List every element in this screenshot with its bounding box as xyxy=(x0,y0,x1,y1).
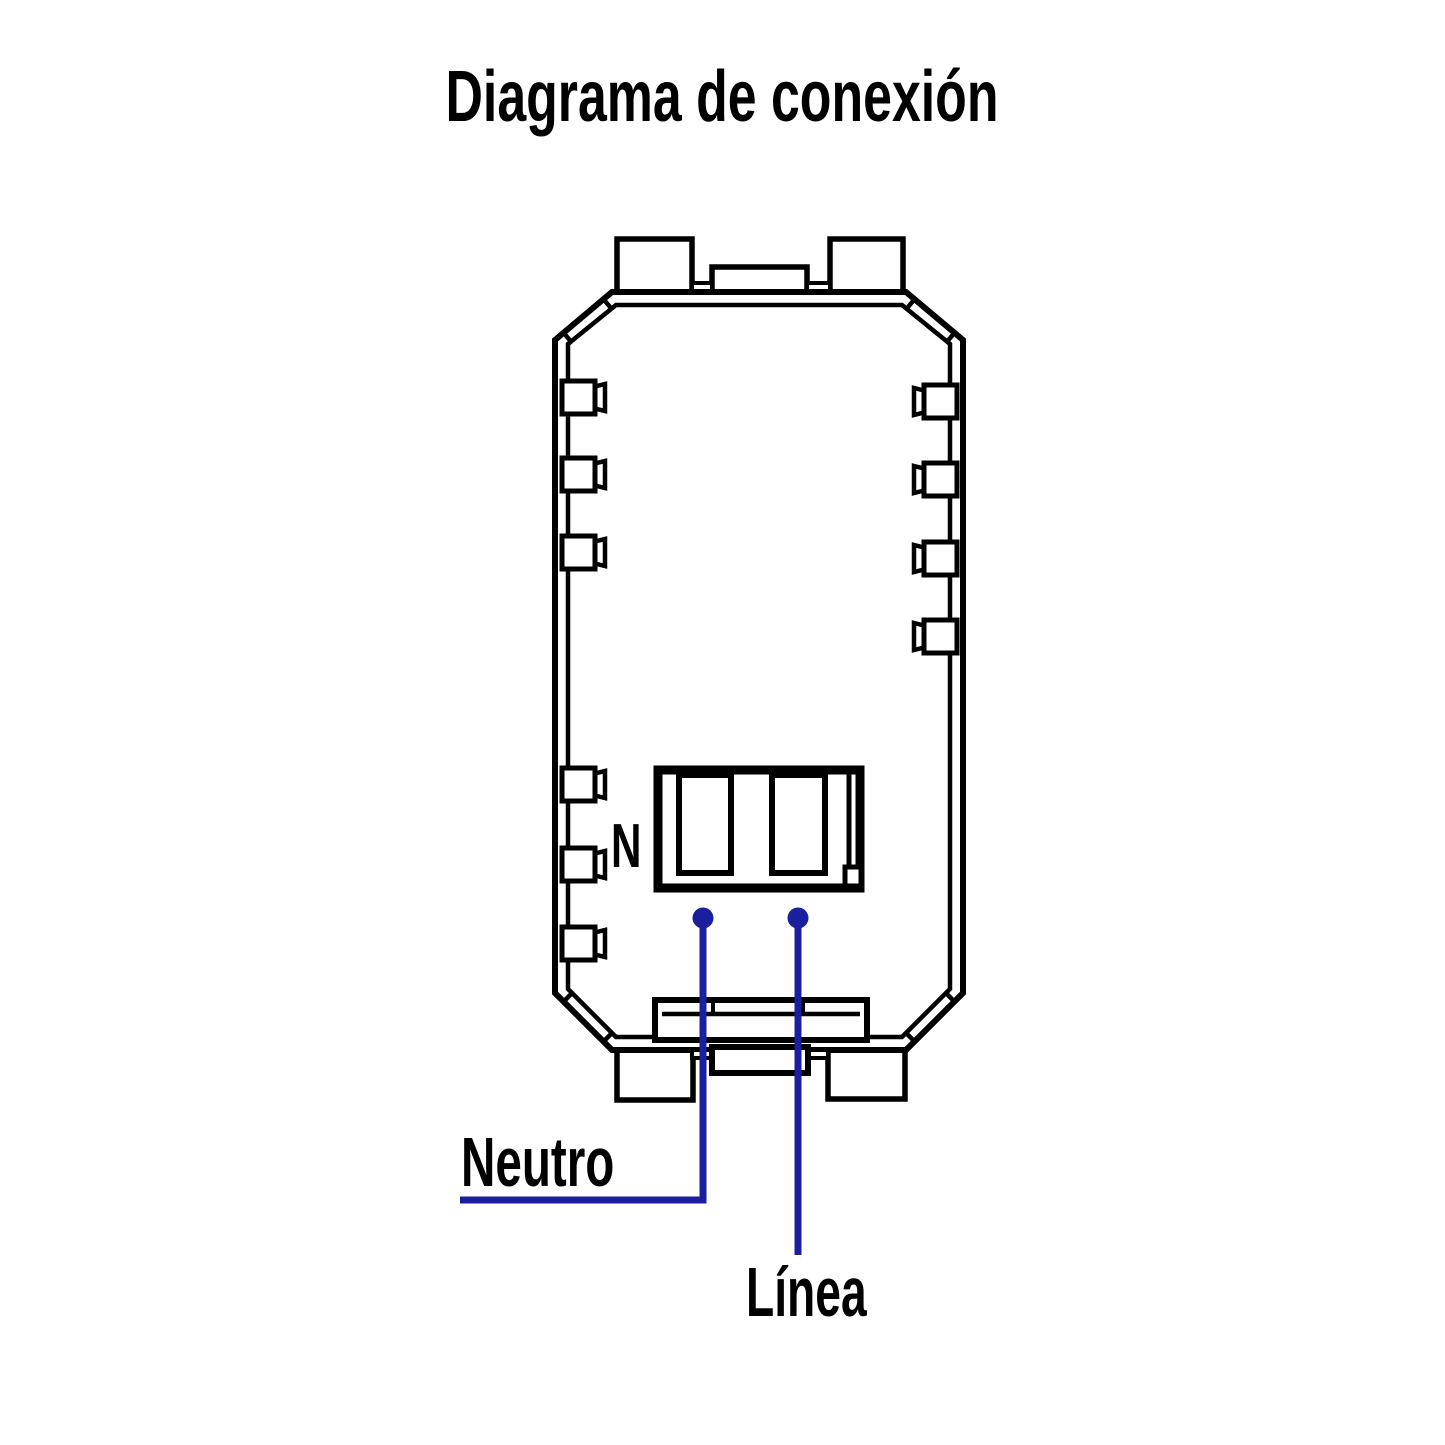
side-clip xyxy=(562,848,605,881)
device-body xyxy=(555,239,963,1100)
side-clip xyxy=(914,542,957,575)
connection-diagram: Diagrama de conexión xyxy=(0,0,1445,1445)
bottom-latch-plate xyxy=(655,1000,867,1040)
page-title: Diagrama de conexión xyxy=(446,57,999,137)
side-clip xyxy=(562,536,605,569)
side-clip xyxy=(562,927,605,960)
neutral-label: Neutro xyxy=(461,1123,614,1201)
body-outline-outer xyxy=(555,292,963,1050)
side-clip xyxy=(914,385,957,418)
terminal-label-n: N xyxy=(611,812,641,881)
terminal-slot-line xyxy=(772,775,825,873)
side-clip xyxy=(914,620,957,653)
line-terminal-dot xyxy=(788,908,809,929)
neutral-terminal-dot xyxy=(693,908,714,929)
mounting-tab-top-left xyxy=(617,239,692,293)
mounting-tab-bottom-right xyxy=(828,1050,905,1099)
side-clip xyxy=(914,463,957,496)
terminal-slot-neutral xyxy=(679,775,731,873)
side-clip xyxy=(562,458,605,491)
side-clip xyxy=(562,768,605,801)
side-clip xyxy=(562,381,605,414)
mounting-tab-bottom-left xyxy=(617,1050,693,1100)
line-label: Línea xyxy=(746,1252,867,1331)
diagram-canvas: Diagrama de conexión xyxy=(0,0,1445,1445)
terminal-block-corner-notch xyxy=(845,867,861,886)
mounting-tab-top-right xyxy=(830,239,903,293)
bottom-center-latch xyxy=(712,1047,808,1073)
